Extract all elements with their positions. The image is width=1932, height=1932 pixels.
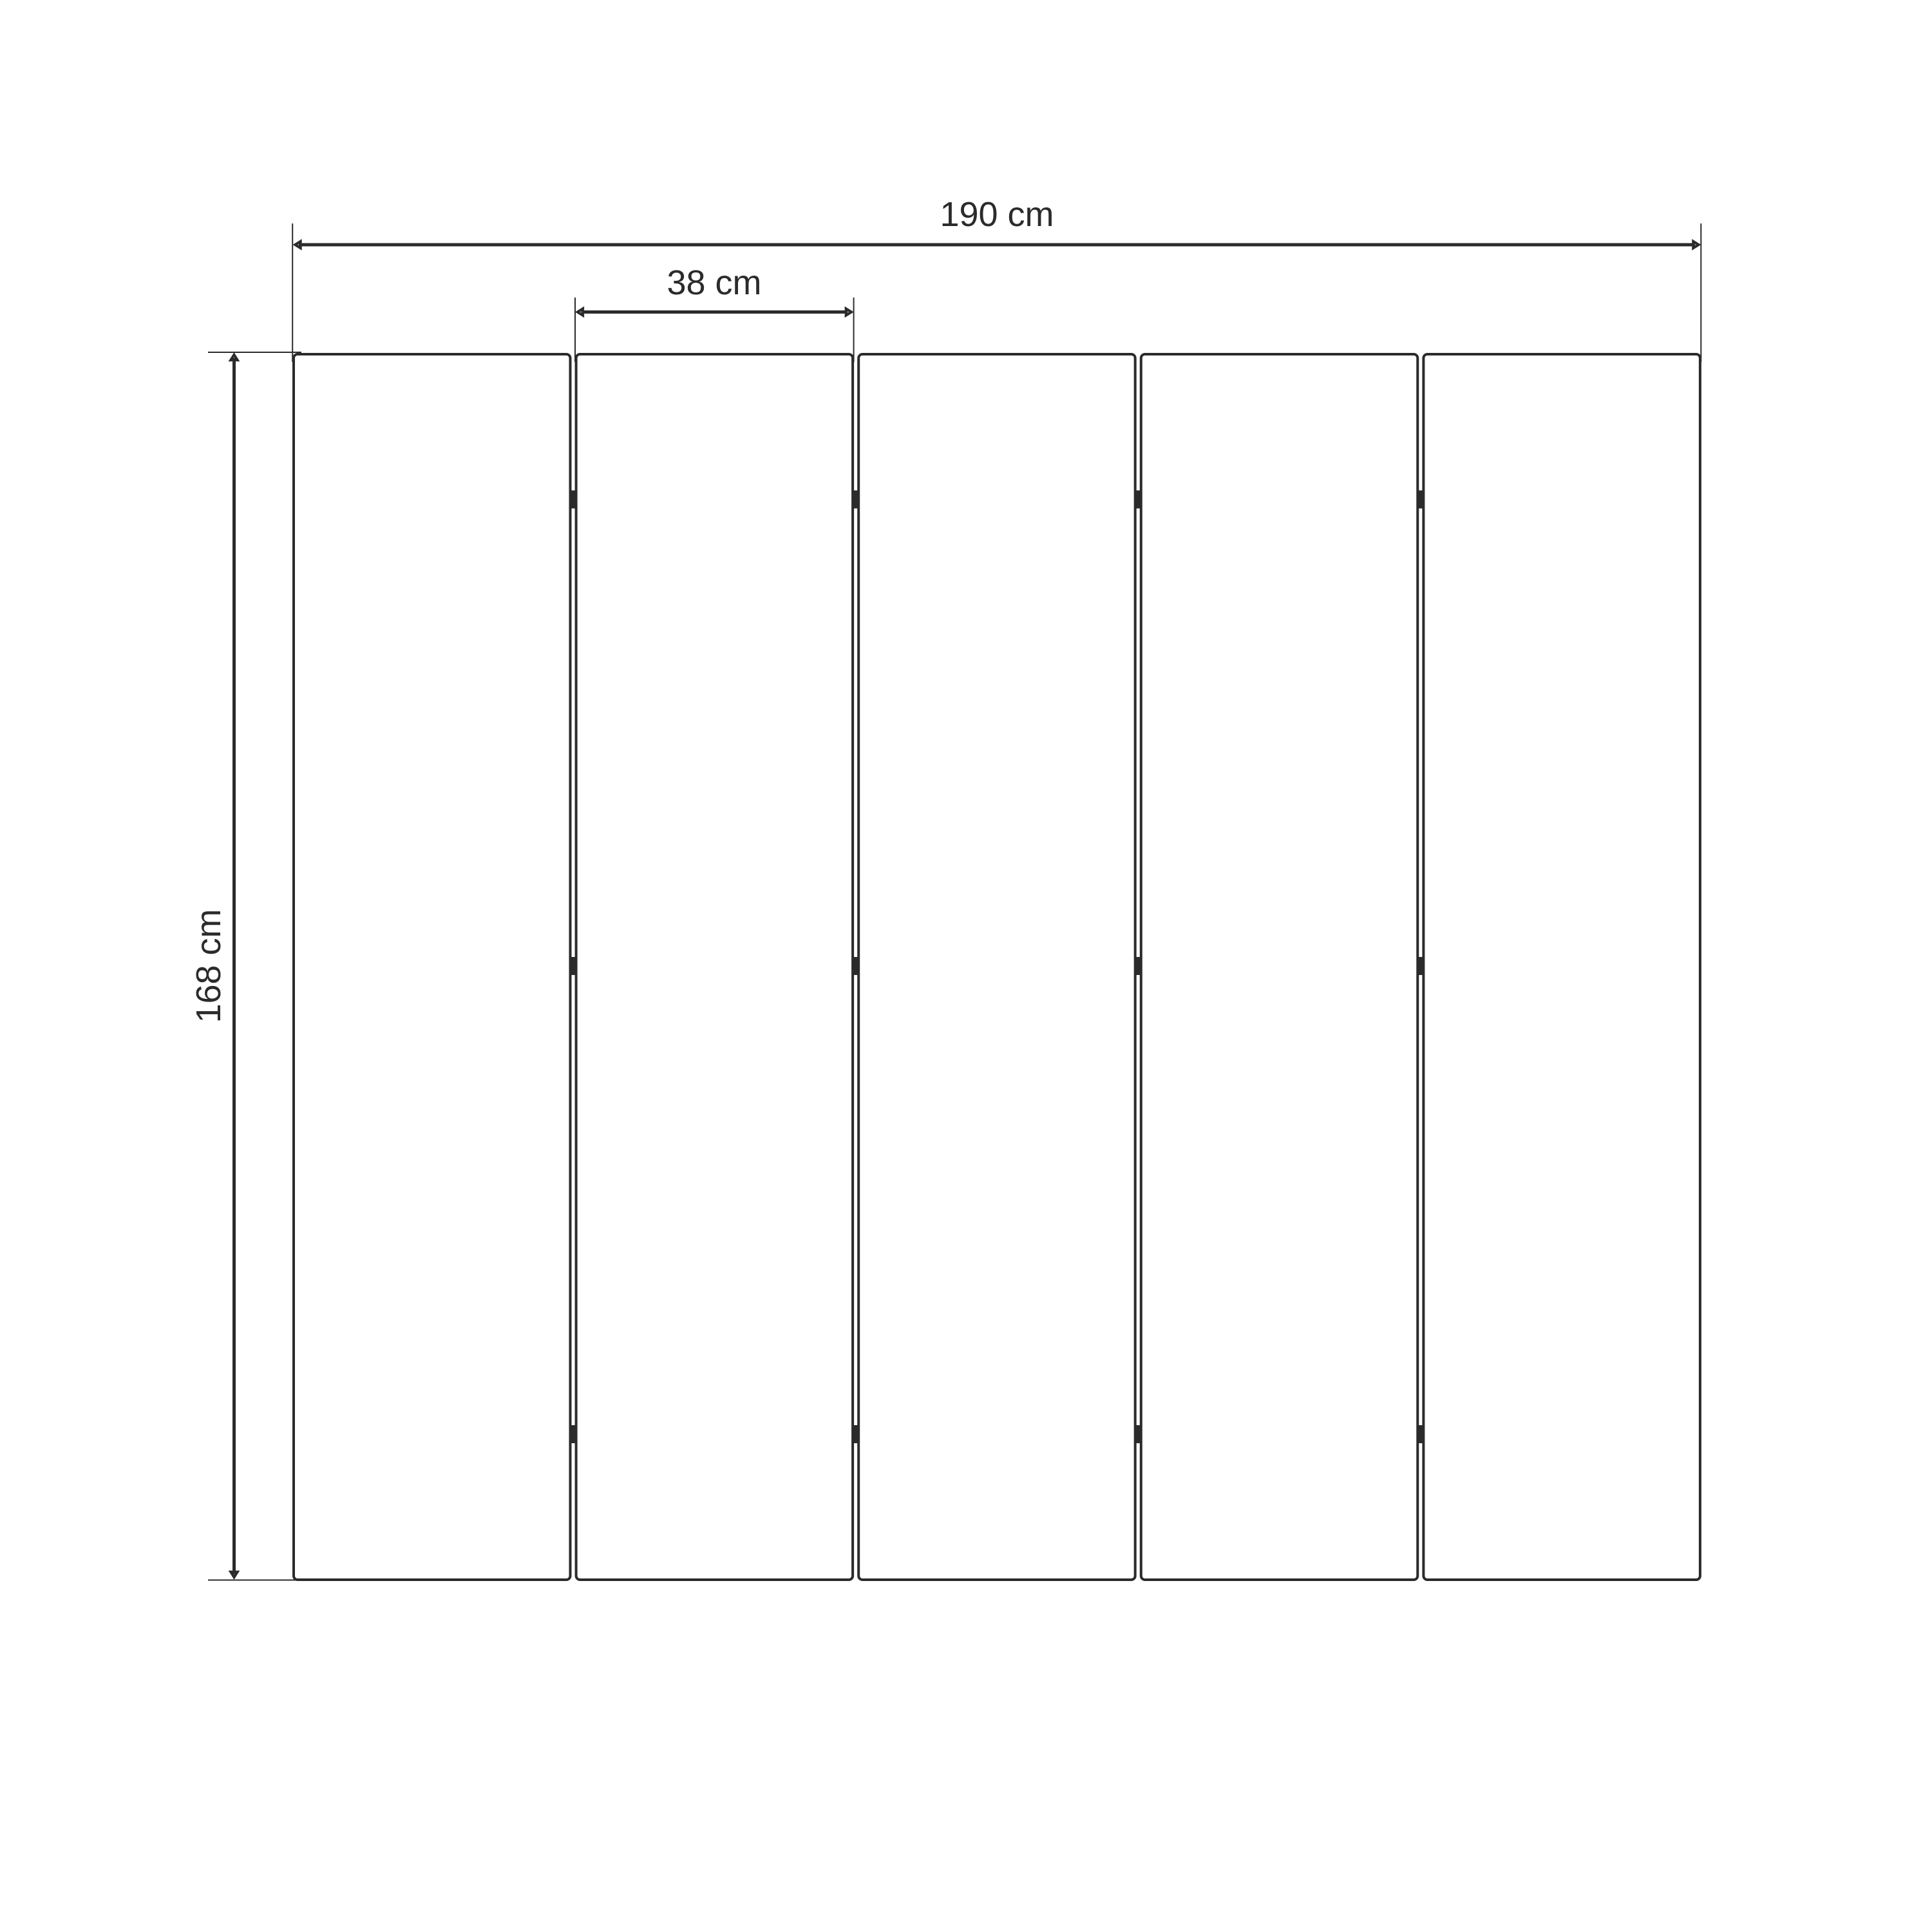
svg-text:190 cm: 190 cm	[940, 195, 1054, 234]
svg-text:168 cm: 168 cm	[189, 909, 228, 1023]
svg-text:38 cm: 38 cm	[667, 263, 761, 302]
